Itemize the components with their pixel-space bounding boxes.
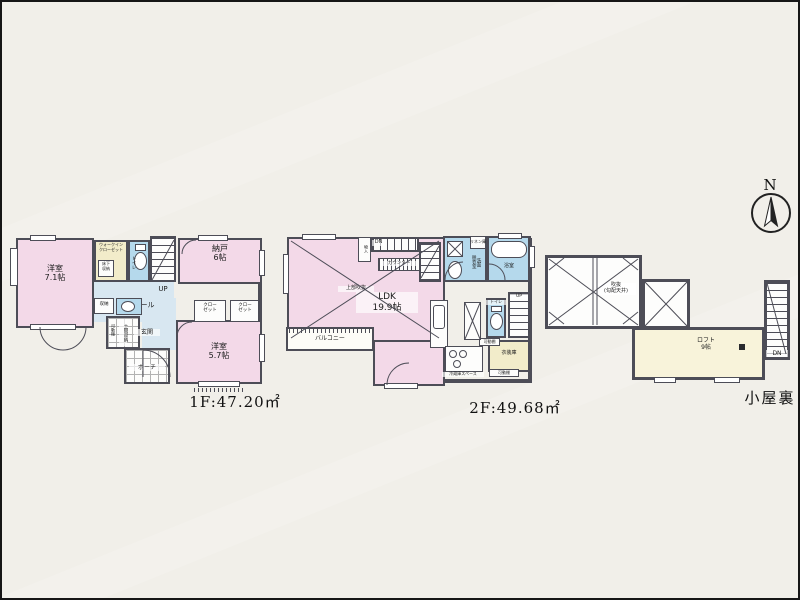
window — [30, 235, 56, 241]
entrance-label: 玄関 — [134, 329, 160, 336]
washbasin-icon — [121, 301, 135, 312]
open-above-label: 上部吹抜 — [338, 286, 374, 292]
fridge-space-label: 冷蔵庫スペース — [442, 372, 484, 377]
attic-void-label: 吹抜 (勾配天井) — [596, 283, 636, 295]
loft-label: ロフト 9帖 — [684, 337, 728, 351]
walk-in-closet-label: ウォークイン クローゼット — [95, 243, 127, 252]
floor-1f-area-label: 1F:47.20㎡ — [170, 394, 300, 412]
window — [302, 234, 336, 240]
small-closet-2f-label: 物入 — [361, 240, 368, 258]
porch-label: ポーチ — [129, 364, 165, 371]
washing-machine-icon — [447, 241, 463, 257]
window — [283, 254, 289, 294]
doma-shelf-label: 可動棚 — [109, 320, 115, 340]
stove-burner-icon — [459, 350, 467, 358]
storage-label: 収納 — [94, 302, 114, 307]
stairs-up-1f-label: UP — [150, 285, 176, 293]
window — [198, 381, 240, 387]
window — [654, 377, 676, 383]
toilet-tank-icon — [135, 244, 146, 251]
window — [498, 233, 522, 239]
room-storeroom-label: 納戸 6帖 — [178, 244, 262, 263]
toilet-bowl-icon — [490, 313, 503, 330]
bathtub-icon — [491, 241, 527, 258]
kitchen-sink-icon — [433, 305, 445, 329]
stairs-up-1f — [150, 236, 176, 282]
attic-floor-label: 小屋裏 — [738, 390, 800, 408]
window — [714, 377, 740, 383]
toilet-tank-icon — [491, 306, 502, 312]
floor-2f-area-label: 2F:49.68㎡ — [450, 400, 580, 418]
linen-label: リネン庫 — [470, 240, 486, 245]
compass-north-label: N — [758, 177, 782, 193]
doma-storage-label: 土間収納 — [119, 319, 127, 346]
window — [30, 324, 76, 330]
stove-burner-icon — [453, 360, 461, 368]
balcony-label: バルコニー — [294, 335, 366, 342]
wall-segment — [258, 282, 262, 322]
study-counter-label: カウンター — [381, 261, 417, 266]
washroom-label: 洗面 脱衣室 — [466, 245, 480, 279]
attic-void-secondary — [642, 279, 690, 329]
stairs-down-2f-label: DN — [372, 240, 385, 246]
bathroom-label: 浴室 — [495, 264, 523, 270]
window — [198, 235, 228, 241]
washroom-sink-icon — [448, 261, 462, 279]
window — [384, 383, 418, 389]
wall-segment — [443, 379, 532, 383]
stairs-winder-2f — [419, 242, 441, 282]
balcony-rail-ticks — [289, 328, 371, 333]
loft-room — [632, 327, 765, 380]
stairs-up-2f-label: UP — [510, 294, 528, 299]
stairs-down-attic-label: DN — [766, 350, 788, 357]
underfloor-storage-label: 床下 収納 — [98, 262, 114, 271]
closet-b-label: クロー ゼット — [230, 303, 260, 314]
toilet-2f-label: トイレ — [486, 300, 506, 305]
compass-needle-icon — [751, 193, 791, 233]
floorplan-scan: N 洋室 7.1帖 納戸 6帖 洋室 5.7帖 ウォークイン クローゼット 床下… — [0, 0, 800, 600]
window — [259, 250, 265, 276]
shelf-a-label: 可動棚 — [479, 340, 500, 345]
loft-post — [739, 344, 745, 350]
stairs-down-attic — [764, 280, 790, 360]
room-bedroom-5-7-label: 洋室 5.7帖 — [176, 342, 262, 361]
room-bedroom-7-1-label: 洋室 7.1帖 — [16, 264, 94, 283]
tall-cabinet — [464, 302, 481, 340]
closet-a-label: クロー ゼット — [194, 303, 226, 314]
bay-window — [10, 248, 18, 286]
window — [259, 334, 265, 362]
window — [529, 246, 535, 268]
toilet-1f-label: トイレ — [128, 250, 135, 276]
stove-burner-icon — [449, 350, 457, 358]
window-sill-ticks — [194, 388, 244, 392]
room-ldk-label: LDK 19.9帖 — [356, 292, 418, 313]
wardrobe-label: 衣装庫 — [490, 351, 528, 357]
room-bedroom-7-1 — [16, 238, 94, 328]
shelf-b-label: 可動棚 — [489, 371, 519, 376]
